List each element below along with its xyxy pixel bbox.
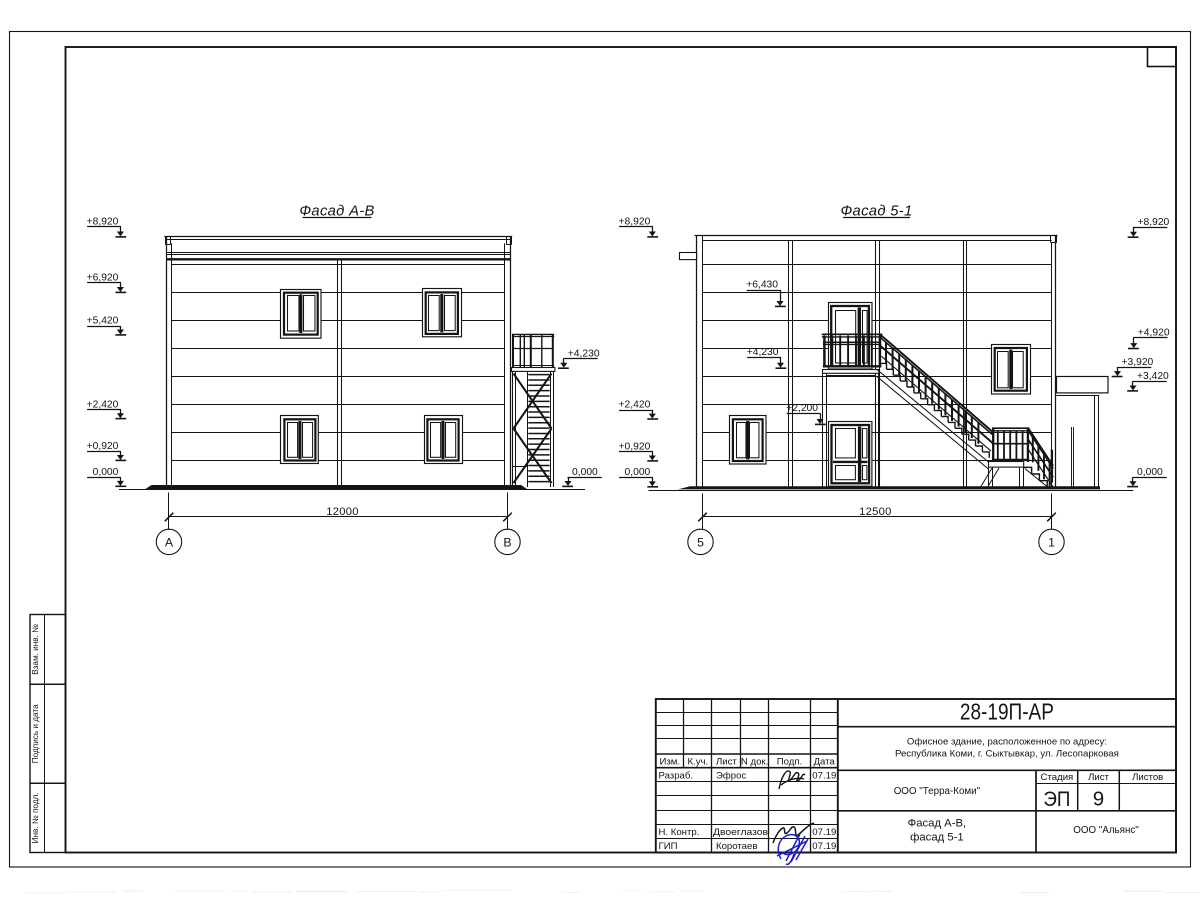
svg-text:Н. Контр.: Н. Контр. — [659, 827, 700, 838]
svg-text:Лист: Лист — [716, 756, 737, 767]
svg-text:Дата: Дата — [814, 756, 836, 767]
svg-text:Республика Коми, г. Сыктывкар,: Республика Коми, г. Сыктывкар, ул. Лесоп… — [895, 749, 1119, 760]
svg-text:+8,920: +8,920 — [1138, 217, 1170, 228]
svg-text:0,000: 0,000 — [572, 467, 598, 478]
svg-text:07.19: 07.19 — [812, 770, 836, 781]
svg-text:+0,920: +0,920 — [619, 441, 651, 452]
svg-text:0,000: 0,000 — [1137, 467, 1163, 478]
svg-text:Стадия: Стадия — [1041, 772, 1074, 783]
svg-text:+4,230: +4,230 — [568, 349, 600, 360]
svg-text:+8,920: +8,920 — [87, 217, 119, 228]
svg-text:+3,420: +3,420 — [1137, 371, 1169, 382]
svg-text:+8,920: +8,920 — [619, 217, 651, 228]
svg-text:Коротаев: Коротаев — [716, 841, 757, 852]
svg-text:Лист: Лист — [1088, 772, 1109, 783]
svg-text:Разраб.: Разраб. — [659, 770, 694, 781]
svg-text:Изм.: Изм. — [660, 756, 681, 767]
svg-text:Фасад А-В,: Фасад А-В, — [908, 817, 967, 829]
svg-text:+3,920: +3,920 — [1122, 357, 1154, 368]
svg-text:+6,920: +6,920 — [87, 273, 119, 284]
svg-text:12500: 12500 — [859, 506, 892, 518]
svg-text:Инв. № подл.: Инв. № подл. — [31, 792, 40, 843]
svg-text:ГИП: ГИП — [659, 841, 678, 852]
svg-text:+4,920: +4,920 — [1138, 327, 1170, 338]
svg-text:Двоеглазов: Двоеглазов — [713, 827, 768, 838]
svg-text:28-19П-АР: 28-19П-АР — [960, 699, 1054, 725]
svg-text:А: А — [165, 535, 174, 549]
svg-text:+6,430: +6,430 — [746, 280, 778, 291]
svg-text:9: 9 — [1093, 788, 1104, 811]
svg-text:Офисное здание, расположенное: Офисное здание, расположенное по адресу: — [907, 737, 1107, 748]
svg-text:+5,420: +5,420 — [87, 316, 119, 327]
svg-text:07.19: 07.19 — [812, 827, 836, 838]
svg-text:В: В — [503, 535, 511, 549]
svg-text:0,000: 0,000 — [625, 467, 651, 478]
svg-text:Подп.: Подп. — [777, 756, 802, 767]
svg-text:12000: 12000 — [326, 506, 359, 518]
svg-text:1: 1 — [1048, 535, 1055, 549]
svg-text:Эфрос: Эфрос — [716, 770, 746, 781]
svg-text:+2,420: +2,420 — [619, 400, 651, 411]
svg-text:ЭП: ЭП — [1043, 788, 1070, 811]
svg-text:ООО "Альянс": ООО "Альянс" — [1073, 825, 1139, 836]
svg-text:5: 5 — [697, 535, 704, 549]
svg-text:фасад 5-1: фасад 5-1 — [910, 831, 964, 843]
svg-text:Подпись и дата: Подпись и дата — [31, 704, 40, 763]
svg-text:+2,420: +2,420 — [87, 399, 119, 410]
svg-text:+4,230: +4,230 — [747, 347, 779, 358]
svg-text:0,000: 0,000 — [93, 467, 119, 478]
svg-text:N док.: N док. — [741, 756, 768, 767]
svg-text:Листов: Листов — [1132, 772, 1163, 783]
svg-text:К.уч.: К.уч. — [687, 756, 708, 767]
svg-text:+2,200: +2,200 — [786, 403, 818, 414]
svg-text:Взам. инв. №: Взам. инв. № — [31, 624, 40, 675]
svg-text:+0,920: +0,920 — [87, 441, 119, 452]
svg-text:ООО "Терра-Коми": ООО "Терра-Коми" — [894, 786, 981, 797]
svg-text:07.19: 07.19 — [812, 841, 836, 852]
